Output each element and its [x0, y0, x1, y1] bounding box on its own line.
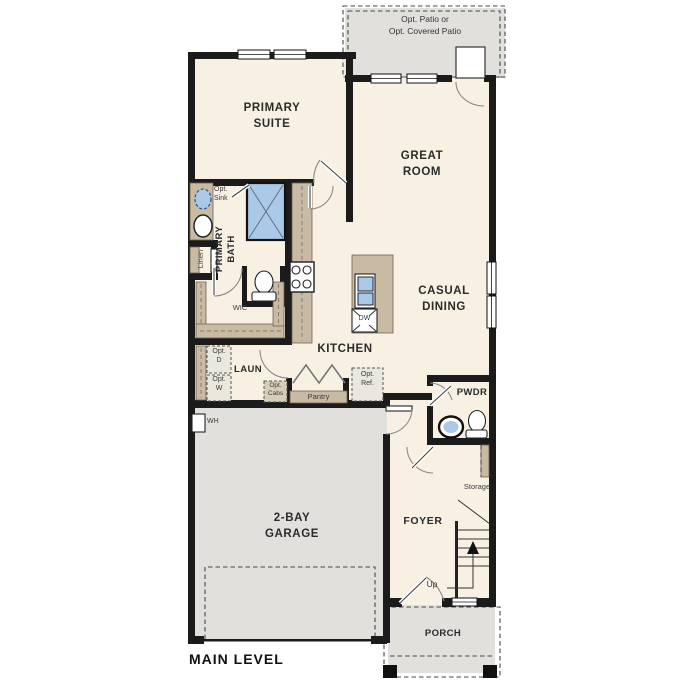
primary-suite-line2: SUITE: [212, 116, 332, 132]
patio-label-line2: Opt. Covered Patio: [345, 25, 505, 37]
linen-text: Linen: [196, 250, 205, 268]
pwdr-fixtures: [439, 411, 487, 439]
bath-sink-fixture: [194, 215, 212, 237]
storage-text: Storage: [464, 482, 490, 491]
casual-dining-label: CASUAL DINING: [404, 283, 484, 315]
opt-sink-line1: Opt.: [214, 186, 248, 195]
water-heater-fixture: [192, 414, 205, 432]
pantry-bifold-door: [293, 365, 345, 383]
garage-entry-door: [386, 406, 412, 434]
pantry-label: Pantry: [290, 392, 347, 401]
pwdr-label: PWDR: [446, 387, 498, 399]
primary-suite-label: PRIMARY SUITE: [212, 100, 332, 132]
opt-washer-label: Opt. W: [207, 376, 231, 393]
linen-label: Linen: [196, 239, 210, 279]
primary-bath-label: PRIMARY BATH: [214, 209, 254, 289]
bath-toilet: [252, 271, 276, 301]
opt-washer-line1: Opt.: [207, 376, 231, 385]
primary-suite-line1: PRIMARY: [212, 100, 332, 116]
primary-suite-door: [314, 160, 346, 183]
foyer-label: FOYER: [383, 513, 463, 529]
opt-cabs-label: Opt. Cabs: [264, 382, 287, 398]
laundry-text: LAUN: [234, 364, 262, 375]
patio-label-line1: Opt. Patio or: [345, 13, 505, 25]
pwdr-text: PWDR: [457, 387, 488, 398]
water-heater-label: WH: [207, 418, 227, 427]
water-heater-text: WH: [207, 418, 219, 425]
opt-cabs-line1: Opt.: [264, 382, 287, 390]
plan-title: MAIN LEVEL: [189, 651, 284, 667]
wic-label: WIC: [210, 303, 270, 312]
porch-post-right: [483, 665, 497, 678]
patio-door: [456, 47, 485, 106]
opt-washer-line2: W: [207, 385, 231, 394]
opt-dryer-line1: Opt.: [207, 348, 231, 357]
up-text: Up: [427, 579, 438, 589]
casual-dining-line2: DINING: [404, 299, 484, 315]
kitchen-text: KITCHEN: [300, 341, 390, 357]
island-sink: [355, 274, 375, 308]
pwdr-sink-basin: [444, 421, 459, 433]
floor-plan: Opt. Patio or Opt. Covered Patio PRIMARY…: [0, 0, 687, 687]
wic-text: WIC: [233, 303, 248, 312]
pwdr-toilet-bowl: [469, 411, 486, 432]
porch-text: PORCH: [425, 628, 461, 639]
pantry-text: Pantry: [308, 392, 330, 401]
opt-ref-line1: Opt.: [352, 371, 383, 380]
great-room-line1: GREAT: [382, 148, 462, 164]
primary-bath-door: [310, 186, 333, 209]
patio-label: Opt. Patio or Opt. Covered Patio: [345, 13, 505, 37]
hall-foyer-door: [407, 447, 433, 473]
porch-outline: [383, 607, 500, 678]
primary-bath-line2: BATH: [226, 209, 238, 289]
garage-line1: 2-BAY: [232, 510, 352, 526]
opt-ref-label: Opt. Ref.: [352, 371, 383, 388]
pwdr-toilet-tank: [466, 430, 487, 438]
dishwasher-label: DW: [352, 315, 377, 324]
casual-dining-line1: CASUAL: [404, 283, 484, 299]
porch-label: PORCH: [413, 628, 473, 640]
laundry-label: LAUN: [224, 364, 272, 376]
understair-storage: [481, 445, 489, 477]
foyer-text: FOYER: [403, 515, 442, 527]
great-room-line2: ROOM: [382, 164, 462, 180]
up-label: Up: [420, 579, 444, 589]
great-room-label: GREAT ROOM: [382, 148, 462, 180]
opt-dryer-line2: D: [207, 357, 231, 366]
garage-door-outline: [205, 567, 375, 639]
opt-sink-fixture: [195, 189, 211, 209]
storage-label: Storage: [447, 482, 507, 491]
plan-title-text: MAIN LEVEL: [189, 651, 284, 667]
kitchen-label: KITCHEN: [300, 341, 390, 357]
opt-sink-line2: Sink: [214, 195, 248, 204]
opt-dryer-label: Opt. D: [207, 348, 231, 365]
garage-label: 2-BAY GARAGE: [232, 510, 352, 542]
garage-line2: GARAGE: [232, 526, 352, 542]
primary-bath-line1: PRIMARY: [214, 209, 226, 289]
dishwasher-text: DW: [359, 315, 371, 322]
porch-post-left: [383, 665, 397, 678]
stove: [290, 262, 314, 292]
opt-ref-line2: Ref.: [352, 380, 383, 389]
opt-cabs-line2: Cabs: [264, 390, 287, 398]
opt-sink-label: Opt. Sink: [214, 186, 248, 203]
